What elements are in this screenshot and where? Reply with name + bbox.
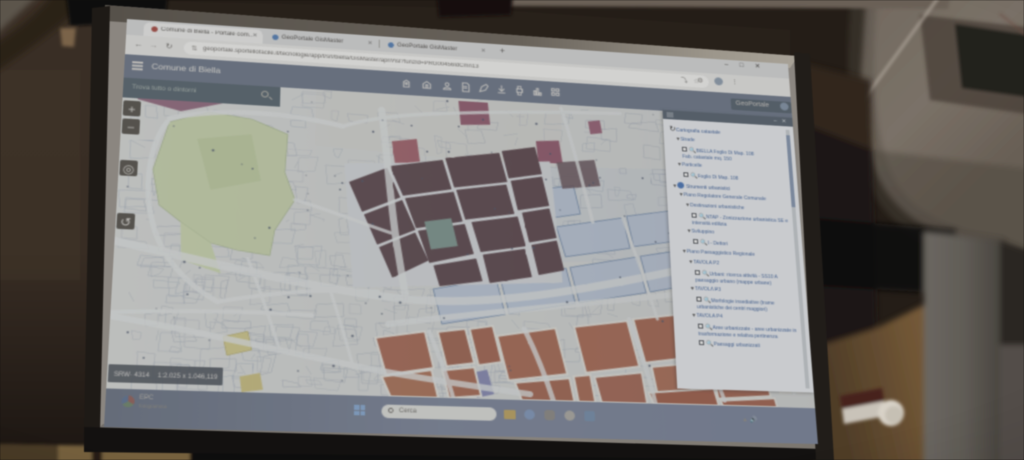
svg-text:−: − [127,121,135,135]
svg-text:SRW· 4314: SRW· 4314 [114,372,151,379]
svg-text:◎: ◎ [122,162,134,176]
svg-text:↺: ↺ [120,215,132,229]
svg-text:+: + [128,103,136,117]
